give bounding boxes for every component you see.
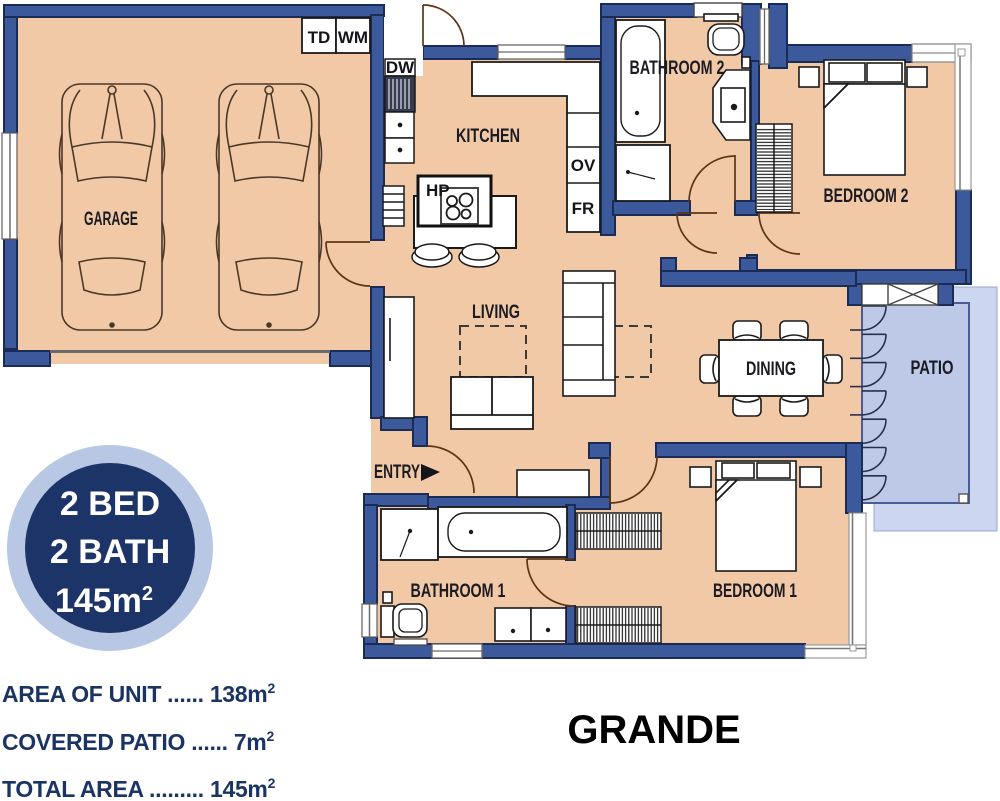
svg-text:2 BED: 2 BED: [60, 485, 160, 523]
svg-text:GARAGE: GARAGE: [84, 209, 138, 230]
svg-text:DINING: DINING: [746, 359, 796, 380]
svg-text:145m2: 145m2: [55, 582, 153, 620]
svg-text:BATHROOM 2: BATHROOM 2: [630, 58, 725, 79]
svg-text:HP: HP: [426, 181, 450, 200]
svg-text:BEDROOM 1: BEDROOM 1: [713, 581, 797, 602]
svg-text:LIVING: LIVING: [472, 302, 520, 323]
svg-text:WM: WM: [338, 28, 368, 47]
svg-text:TD: TD: [308, 28, 331, 47]
svg-text:GRANDE: GRANDE: [567, 708, 740, 752]
svg-text:ENTRY: ENTRY: [374, 462, 420, 483]
svg-text:DW: DW: [386, 58, 415, 77]
svg-text:KITCHEN: KITCHEN: [456, 126, 520, 147]
svg-text:BATHROOM 1: BATHROOM 1: [411, 581, 506, 602]
svg-text:TOTAL AREA ......... 145m2: TOTAL AREA ......... 145m2: [2, 775, 276, 801]
svg-text:AREA OF UNIT ...... 138m2: AREA OF UNIT ...... 138m2: [2, 680, 275, 707]
svg-text:FR: FR: [572, 199, 595, 218]
svg-text:OV: OV: [571, 156, 596, 175]
svg-text:PATIO: PATIO: [911, 358, 954, 379]
svg-text:2 BATH: 2 BATH: [50, 533, 170, 571]
svg-text:COVERED PATIO ...... 7m2: COVERED PATIO ...... 7m2: [2, 728, 274, 755]
svg-text:BEDROOM 2: BEDROOM 2: [824, 186, 909, 207]
